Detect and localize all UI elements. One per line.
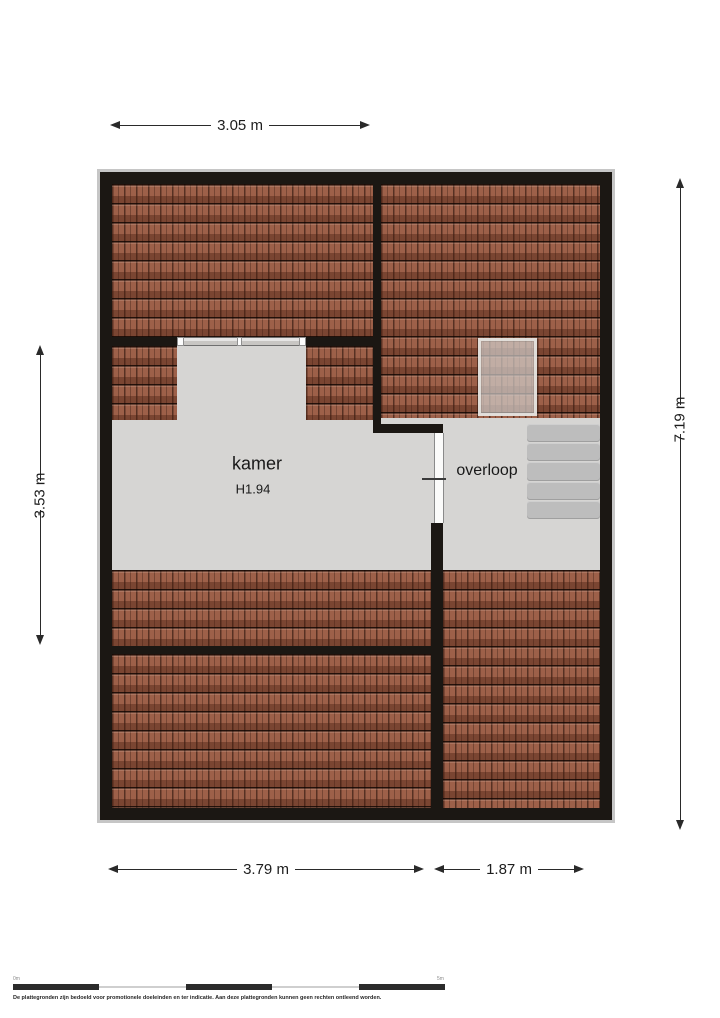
arrowhead-down-icon (676, 820, 684, 830)
skylight-window (478, 338, 537, 416)
stair-tread (527, 443, 600, 461)
interior-wall-corner (373, 424, 443, 433)
dimension-bottom-left: 3.79 m (108, 861, 424, 877)
arrowhead-down-icon (36, 635, 44, 645)
arrowhead-left-icon (108, 865, 118, 873)
stair-tread (527, 501, 600, 519)
arrowhead-up-icon (676, 178, 684, 188)
staircase (527, 424, 600, 519)
dimension-right: 7.19 m (672, 178, 688, 830)
dimension-left: 3.53 m (32, 345, 48, 645)
arrowhead-left-icon (434, 865, 444, 873)
roof-area-top-left (112, 184, 373, 337)
disclaimer-text: De plattegronden zijn bedoeld voor promo… (13, 995, 381, 1001)
scalebar-end-label: 5m (437, 977, 444, 982)
dimension-top-label: 3.05 m (211, 117, 269, 134)
dimension-bottom-left-label: 3.79 m (237, 861, 295, 878)
interior-wall-bottom (431, 523, 443, 808)
arrowhead-right-icon (360, 121, 370, 129)
dimension-bottom-right: 1.87 m (434, 861, 584, 877)
floorplan: kamer H1.94 overloop (100, 172, 612, 820)
floorplan-page: 3.05 m 3.53 m 7.19 m 3.79 m 1.87 m (0, 0, 720, 1018)
dimension-left-label: 3.53 m (26, 472, 55, 518)
room-label-overloop: overloop (456, 462, 517, 480)
scalebar-segment (13, 984, 99, 990)
dimension-right-label: 7.19 m (666, 397, 695, 443)
stair-tread (527, 424, 600, 442)
arrowhead-right-icon (574, 865, 584, 873)
window-frame-middle (237, 337, 242, 346)
scalebar-segment (99, 986, 185, 988)
interior-wall-top (373, 184, 381, 424)
interior-wall-horizontal (112, 646, 431, 654)
arrowhead-right-icon (414, 865, 424, 873)
dimension-top: 3.05 m (110, 117, 370, 133)
arrowhead-left-icon (110, 121, 120, 129)
scalebar-start-label: 0m (13, 977, 20, 982)
scalebar (13, 984, 445, 990)
arrowhead-up-icon (36, 345, 44, 355)
roof-area-bottom-left-upper (112, 570, 431, 646)
room-height-label: H1.94 (236, 482, 271, 497)
window-frame-left (177, 337, 184, 346)
roof-area-dormer-right (306, 346, 373, 420)
roof-area-bottom-right (443, 570, 600, 808)
stair-tread (527, 462, 600, 480)
dimension-bottom-right-label: 1.87 m (480, 861, 538, 878)
scalebar-segment (186, 984, 272, 990)
scalebar-segment (272, 986, 358, 988)
roof-area-bottom-left-lower (112, 654, 431, 808)
roof-area-dormer-left (112, 346, 177, 420)
window-frame-right (299, 337, 306, 346)
scalebar-segment (359, 984, 445, 990)
dormer-window (177, 337, 306, 346)
room-label-kamer: kamer (232, 454, 282, 475)
stair-tread (527, 482, 600, 500)
door-tick-mark (422, 478, 446, 480)
